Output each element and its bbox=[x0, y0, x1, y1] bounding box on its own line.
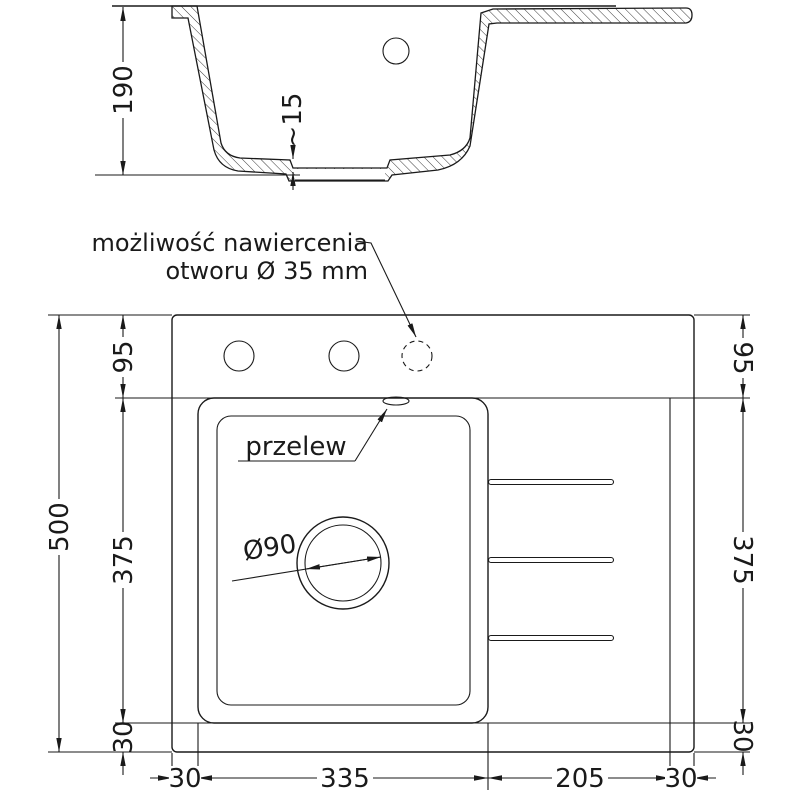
side-section-view: 190 ~15 bbox=[95, 6, 692, 190]
drainer-groove bbox=[489, 558, 614, 563]
drill-note-line2: otworu Ø 35 mm bbox=[165, 257, 368, 285]
drainer-groove bbox=[489, 480, 614, 485]
drain-diameter-arrow bbox=[306, 557, 381, 569]
faucet-hole-2 bbox=[329, 341, 359, 371]
overflow-label: przelew bbox=[245, 432, 346, 462]
faucet-hole-1 bbox=[224, 341, 254, 371]
dim-deck-left: 95 bbox=[109, 340, 139, 373]
dim-drainer-width: 205 bbox=[555, 764, 605, 794]
drainer-groove bbox=[489, 636, 614, 641]
dim-left-margin: 30 bbox=[168, 764, 201, 794]
dim-margin-left: 30 bbox=[109, 720, 139, 753]
drainer-grooves bbox=[489, 480, 614, 641]
drain-recess-strip bbox=[295, 169, 385, 180]
overflow-callout: przelew bbox=[238, 409, 387, 462]
dim-bowl-left: 375 bbox=[109, 535, 139, 585]
dims-bottom: 30 335 205 30 bbox=[150, 723, 716, 794]
sink-outline bbox=[172, 315, 694, 752]
drain-step-label: ~15 bbox=[278, 93, 308, 148]
dim-margin-right: 30 bbox=[727, 719, 757, 752]
sink-section-profile bbox=[172, 6, 692, 181]
faucet-hole-section bbox=[383, 38, 409, 64]
dim-bowl-right: 375 bbox=[727, 535, 757, 585]
drill-note: możliwość nawiercenia otworu Ø 35 mm bbox=[91, 229, 416, 337]
drill-note-line1: możliwość nawiercenia bbox=[91, 229, 368, 257]
depth-dim-label: 190 bbox=[109, 65, 139, 115]
drawing-svg: 190 ~15 możliwość nawiercenia otworu Ø 3… bbox=[0, 0, 800, 800]
dim-total-height: 500 bbox=[45, 502, 75, 552]
dim-deck-right: 95 bbox=[727, 341, 757, 374]
drain-diameter-label: Ø90 bbox=[241, 529, 299, 567]
sink-technical-drawing: 190 ~15 możliwość nawiercenia otworu Ø 3… bbox=[0, 0, 800, 800]
overflow-leader bbox=[355, 409, 387, 461]
dim-right-margin: 30 bbox=[664, 764, 697, 794]
dims-right: 95 375 30 bbox=[694, 315, 757, 775]
dims-left: 500 95 375 30 bbox=[45, 315, 172, 775]
dim-bowl-width: 335 bbox=[320, 764, 370, 794]
plan-view: przelew Ø90 bbox=[115, 315, 750, 790]
faucet-hole-optional-dashed bbox=[402, 341, 432, 371]
